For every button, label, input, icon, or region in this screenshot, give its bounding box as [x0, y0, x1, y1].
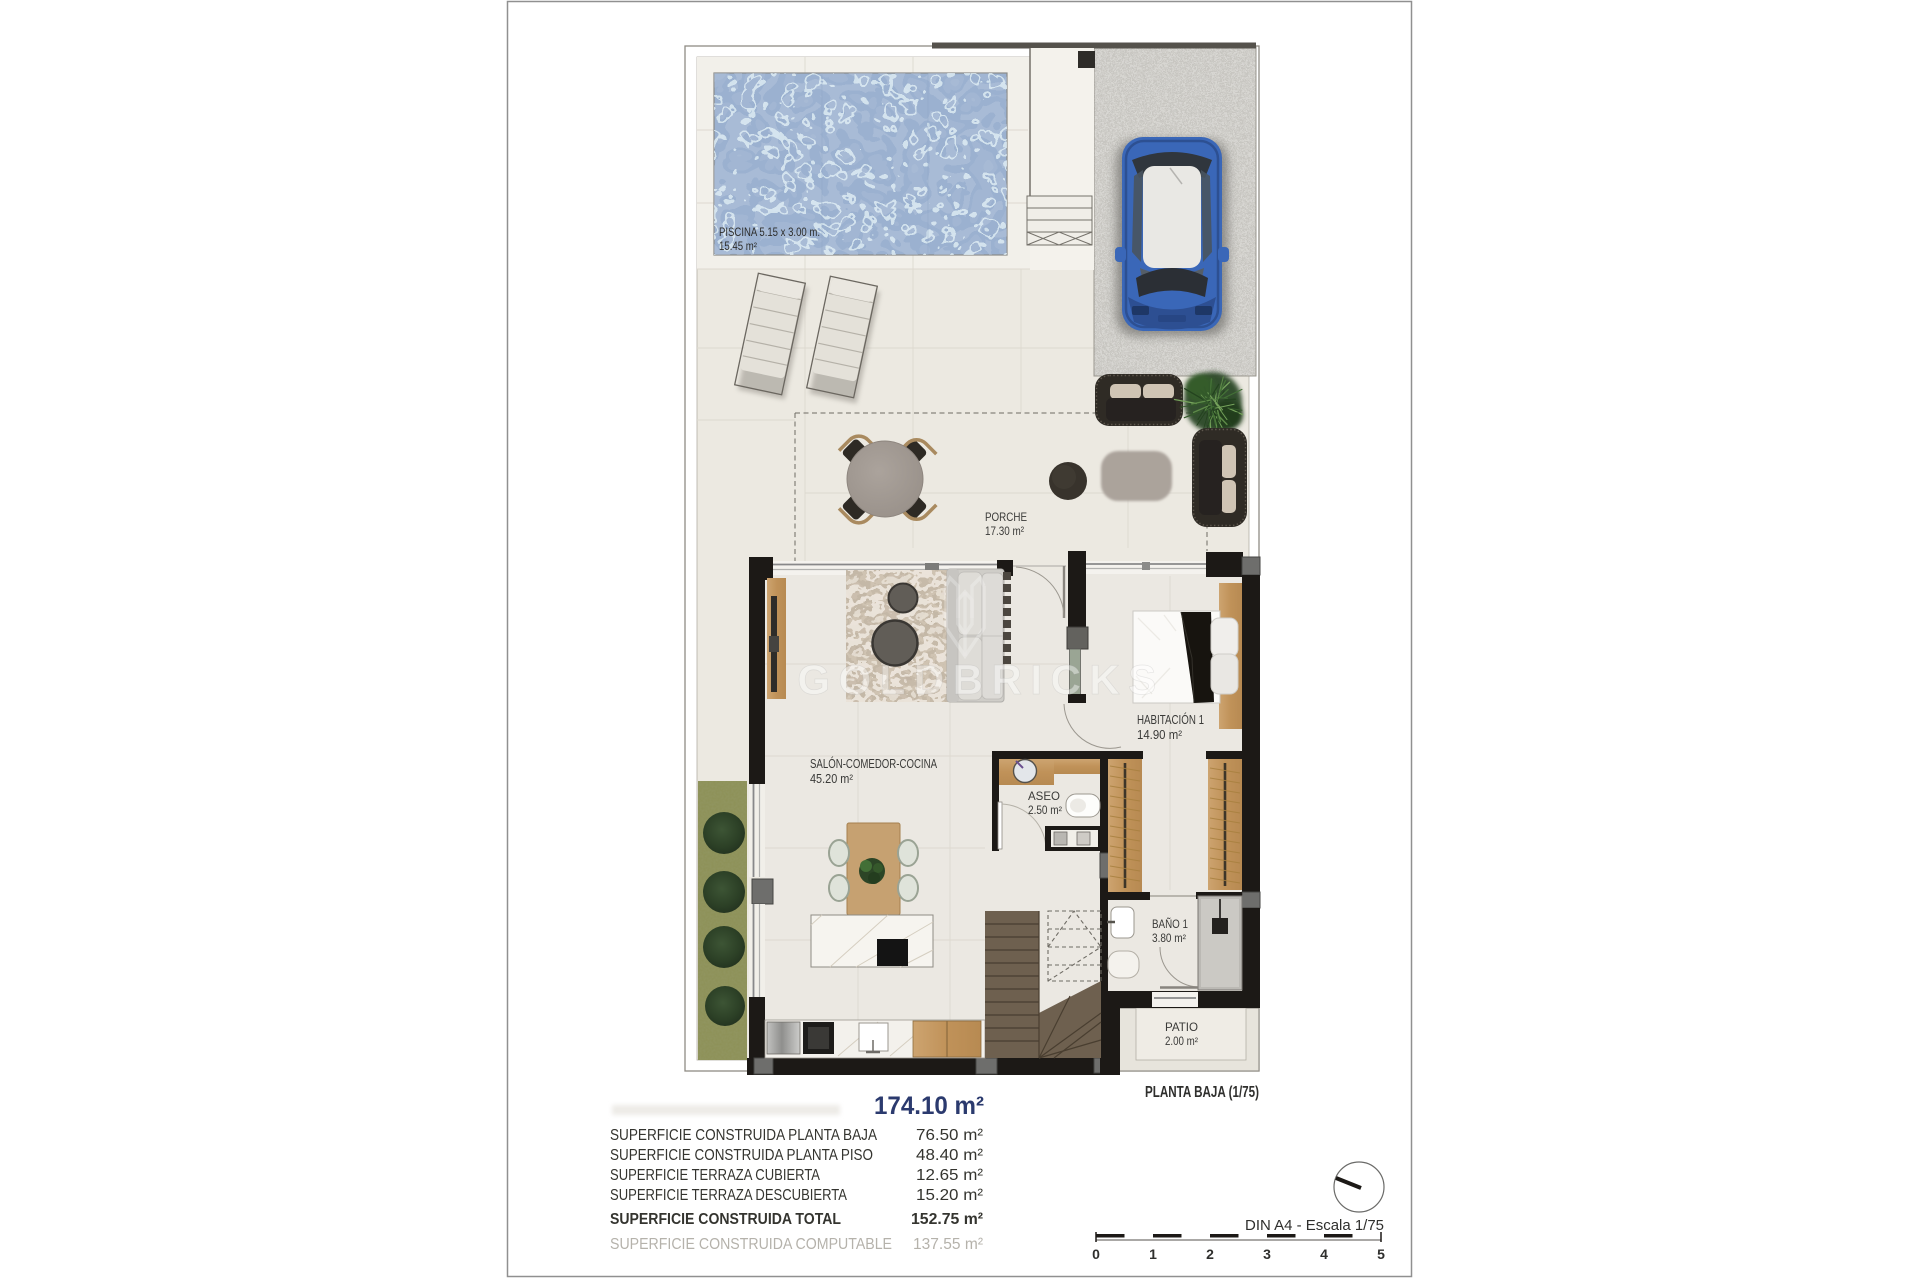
- svg-text:2.50 m²: 2.50 m²: [1028, 805, 1062, 817]
- svg-text:15.45 m²: 15.45 m²: [719, 241, 757, 253]
- svg-text:SUPERFICIE CONSTRUIDA COMPUTAB: SUPERFICIE CONSTRUIDA COMPUTABLE: [610, 1236, 892, 1253]
- svg-text:17.30 m²: 17.30 m²: [985, 524, 1024, 538]
- svg-text:2.00 m²: 2.00 m²: [1165, 1036, 1198, 1048]
- svg-text:15.20 m²: 15.20 m²: [916, 1187, 984, 1204]
- svg-text:48.40 m²: 48.40 m²: [916, 1147, 984, 1164]
- svg-text:BAÑO 1: BAÑO 1: [1152, 918, 1188, 931]
- svg-text:SUPERFICIE CONSTRUIDA TOTAL: SUPERFICIE CONSTRUIDA TOTAL: [610, 1211, 841, 1228]
- svg-text:DIN A4 - Escala 1/75: DIN A4 - Escala 1/75: [1245, 1218, 1384, 1234]
- svg-text:GOLDBRICKS: GOLDBRICKS: [797, 656, 1164, 703]
- svg-text:76.50 m²: 76.50 m²: [916, 1127, 984, 1144]
- svg-text:SUPERFICIE CONSTRUIDA PLANTA B: SUPERFICIE CONSTRUIDA PLANTA BAJA: [610, 1127, 877, 1144]
- svg-text:12.65 m²: 12.65 m²: [916, 1167, 984, 1184]
- svg-text:SUPERFICIE TERRAZA CUBIERTA: SUPERFICIE TERRAZA CUBIERTA: [610, 1167, 820, 1184]
- svg-text:5: 5: [1377, 1246, 1385, 1262]
- svg-text:1: 1: [1149, 1246, 1157, 1262]
- svg-text:152.75 m²: 152.75 m²: [911, 1211, 983, 1228]
- svg-text:PORCHE: PORCHE: [985, 510, 1027, 524]
- svg-text:3.80 m²: 3.80 m²: [1152, 933, 1186, 945]
- svg-text:SUPERFICIE CONSTRUIDA PLANTA P: SUPERFICIE CONSTRUIDA PLANTA PISO: [610, 1147, 873, 1164]
- svg-text:4: 4: [1320, 1246, 1328, 1262]
- svg-text:14.90 m²: 14.90 m²: [1137, 728, 1182, 742]
- svg-text:137.55 m²: 137.55 m²: [913, 1236, 984, 1253]
- svg-text:0: 0: [1092, 1246, 1100, 1262]
- svg-text:PISCINA 5.15 x 3.00 m.: PISCINA 5.15 x 3.00 m.: [719, 227, 820, 239]
- svg-text:ASEO: ASEO: [1028, 791, 1060, 803]
- svg-text:PLANTA BAJA (1/75): PLANTA BAJA (1/75): [1145, 1084, 1259, 1101]
- svg-text:3: 3: [1263, 1246, 1271, 1262]
- svg-text:45.20 m²: 45.20 m²: [810, 772, 853, 786]
- svg-text:PATIO: PATIO: [1165, 1022, 1198, 1034]
- svg-text:SALÓN-COMEDOR-COCINA: SALÓN-COMEDOR-COCINA: [810, 756, 938, 771]
- svg-text:174.10 m²: 174.10 m²: [874, 1092, 984, 1120]
- svg-text:2: 2: [1206, 1246, 1214, 1262]
- svg-text:SUPERFICIE TERRAZA DESCUBIERTA: SUPERFICIE TERRAZA DESCUBIERTA: [610, 1187, 847, 1204]
- svg-text:HABITACIÓN 1: HABITACIÓN 1: [1137, 712, 1204, 727]
